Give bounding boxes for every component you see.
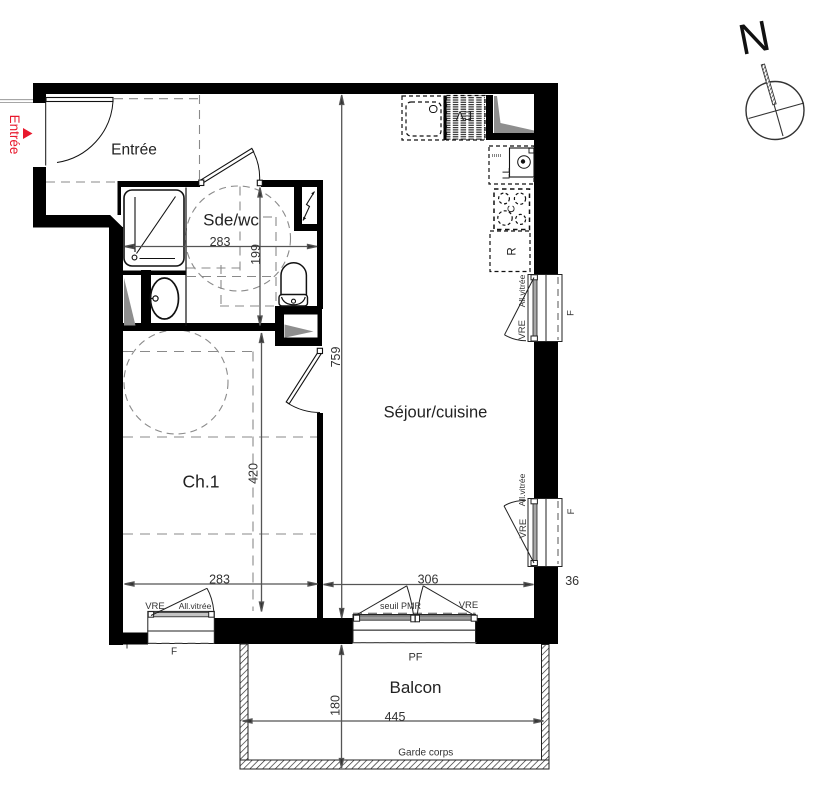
svg-text:199: 199: [249, 244, 263, 265]
svg-text:VRE: VRE: [517, 320, 528, 340]
svg-text:445: 445: [385, 710, 406, 724]
svg-text:VRE: VRE: [518, 519, 529, 539]
svg-text:VRE: VRE: [459, 600, 479, 611]
svg-text:VRE: VRE: [145, 601, 165, 612]
svg-text:All.vitrée: All.vitrée: [179, 601, 212, 611]
svg-text:283: 283: [210, 235, 231, 249]
svg-text:283: 283: [209, 573, 230, 587]
svg-text:180: 180: [329, 695, 343, 716]
svg-text:seuil PMR: seuil PMR: [380, 601, 422, 611]
svg-text:Sde/wc: Sde/wc: [203, 211, 259, 230]
svg-text:LL: LL: [501, 168, 513, 180]
svg-text:F: F: [566, 310, 577, 316]
svg-text:F: F: [171, 647, 177, 658]
svg-text:Ch.1: Ch.1: [183, 472, 220, 492]
svg-text:F: F: [566, 508, 577, 514]
svg-text:Garde corps: Garde corps: [398, 748, 453, 759]
svg-text:All.vitrée: All.vitrée: [517, 473, 527, 506]
svg-text:759: 759: [329, 347, 343, 368]
svg-text:36: 36: [565, 574, 579, 588]
svg-text:306: 306: [418, 573, 439, 587]
svg-text:Séjour/cuisine: Séjour/cuisine: [384, 404, 488, 422]
svg-text:Entrée: Entrée: [111, 142, 157, 159]
svg-text:R: R: [507, 247, 519, 255]
svg-text:PF: PF: [408, 652, 422, 664]
svg-text:420: 420: [247, 463, 261, 484]
svg-text:C: C: [506, 205, 518, 213]
svg-text:Entrée: Entrée: [7, 115, 22, 155]
svg-text:All.vitrée: All.vitrée: [517, 274, 527, 307]
svg-text:EV: EV: [456, 109, 472, 123]
svg-text:Balcon: Balcon: [390, 678, 442, 697]
